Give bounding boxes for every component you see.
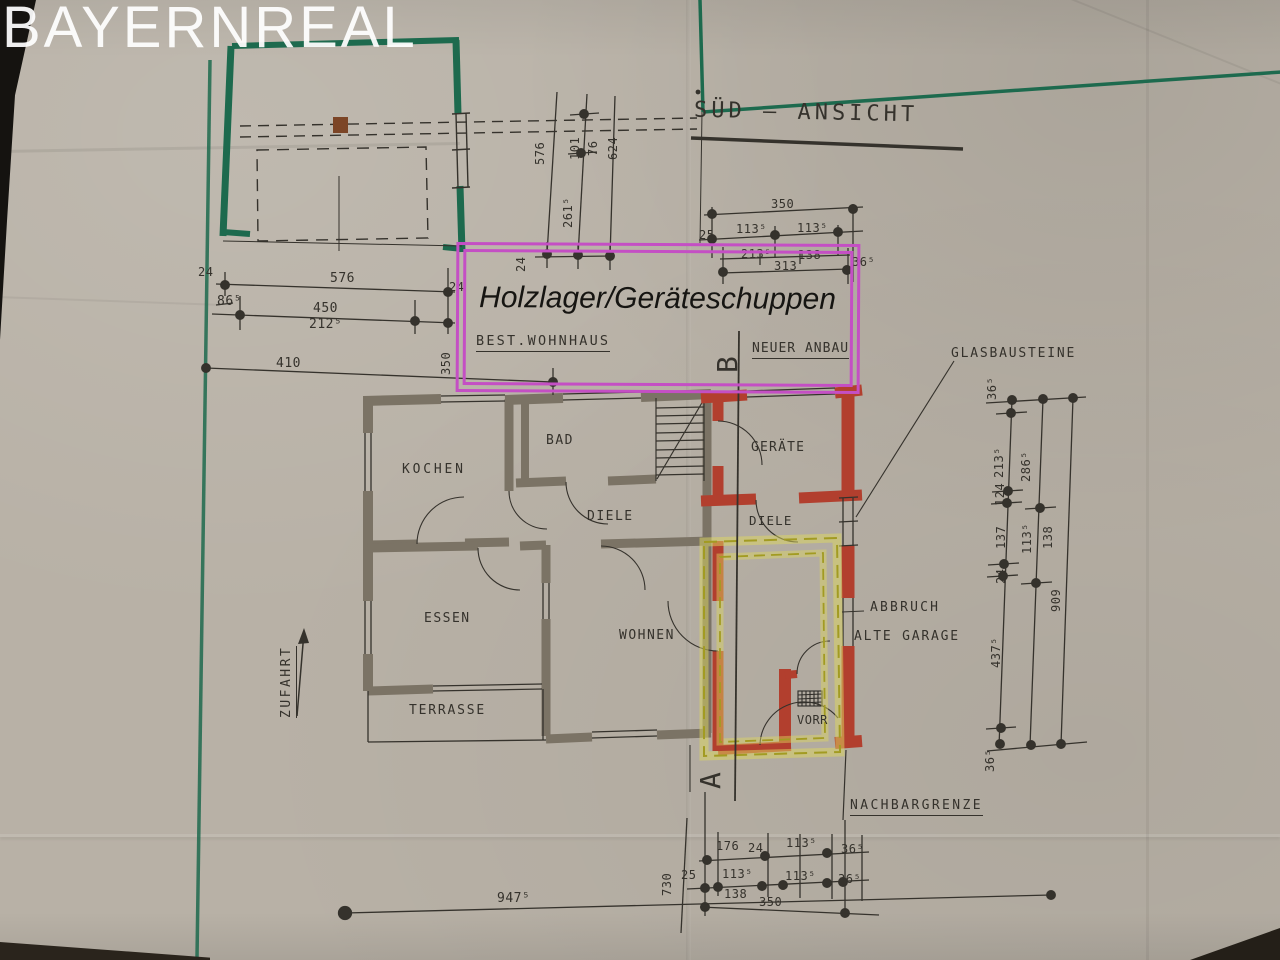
chimney	[798, 691, 822, 706]
door-arcs	[417, 421, 838, 745]
abbruch-leader	[842, 611, 864, 612]
boundary-top-vertical	[700, 0, 703, 112]
annotation-label: Holzlager/Geräteschuppen	[479, 281, 836, 317]
drawing-title: SÜD – ANSICHT	[694, 98, 919, 128]
dimension-lines	[202, 92, 1087, 933]
annotation-highlight-box: Holzlager/Geräteschuppen	[456, 242, 861, 394]
floor-plan-drawing	[0, 0, 1280, 960]
boundary-left	[197, 60, 210, 958]
demolition-highlight	[704, 538, 840, 756]
shed-post	[333, 117, 348, 133]
watermark: BAYERNREAL	[2, 0, 418, 61]
title-underline	[691, 138, 963, 149]
scanned-floor-plan: BEST.WOHNHAUSNEUER ANBAUKOCHENBADDIELEGE…	[0, 0, 1280, 960]
shed-dashed-line	[240, 118, 697, 126]
shed-dashed-line	[240, 129, 697, 137]
shed-dashed-rect	[257, 147, 428, 241]
ink-speck	[696, 90, 701, 95]
nachbargrenze-line	[843, 750, 846, 820]
existing-walls	[364, 394, 711, 739]
annotation-box-inner-border	[463, 249, 854, 387]
glasbausteine-leader	[856, 361, 954, 517]
zufahrt-arrow	[297, 628, 309, 716]
staircase	[656, 396, 704, 481]
